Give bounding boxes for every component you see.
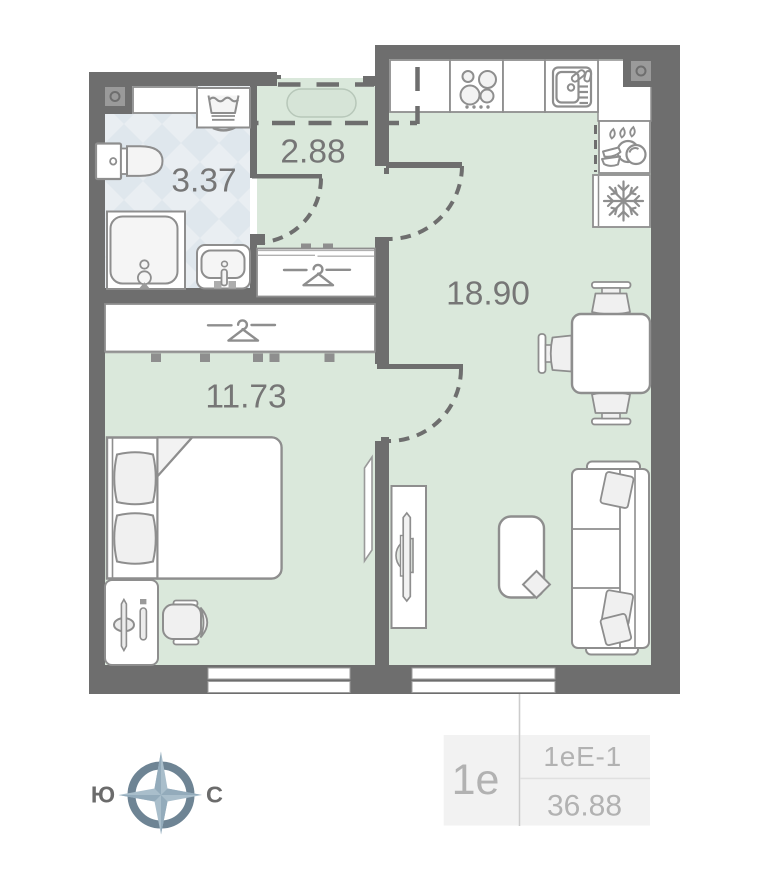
svg-text:1е: 1е	[452, 756, 500, 804]
svg-text:11.73: 11.73	[205, 379, 286, 416]
svg-text:1еЕ-1: 1еЕ-1	[543, 741, 622, 772]
svg-text:Ю: Ю	[91, 782, 115, 808]
svg-text:2.88: 2.88	[280, 134, 345, 171]
svg-text:36.88: 36.88	[547, 790, 622, 823]
svg-text:3.37: 3.37	[171, 163, 236, 200]
svg-text:С: С	[206, 782, 223, 808]
svg-text:18.90: 18.90	[446, 276, 530, 313]
